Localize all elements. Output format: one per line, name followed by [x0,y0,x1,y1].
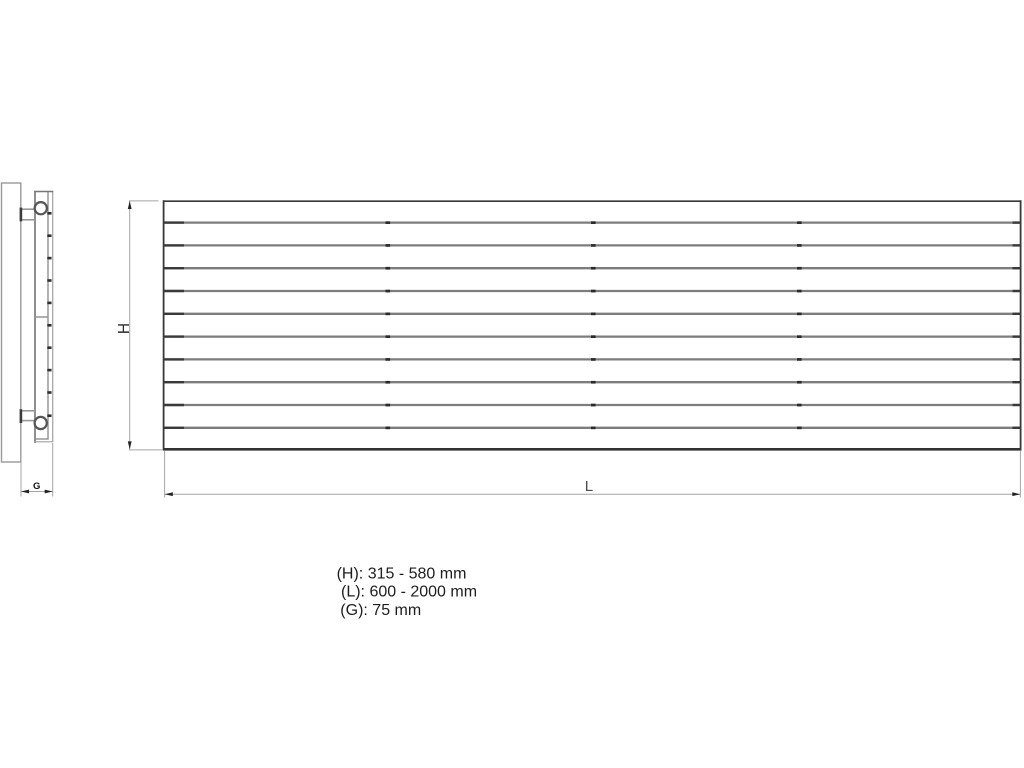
svg-text:L: L [585,478,593,495]
svg-text:(G): 75 mm: (G): 75 mm [340,602,421,619]
svg-text:(L): 600 - 2000 mm: (L): 600 - 2000 mm [341,584,477,601]
svg-text:H: H [116,323,133,334]
svg-text:G: G [33,481,40,492]
svg-text:(H): 315 - 580 mm: (H): 315 - 580 mm [337,565,467,582]
